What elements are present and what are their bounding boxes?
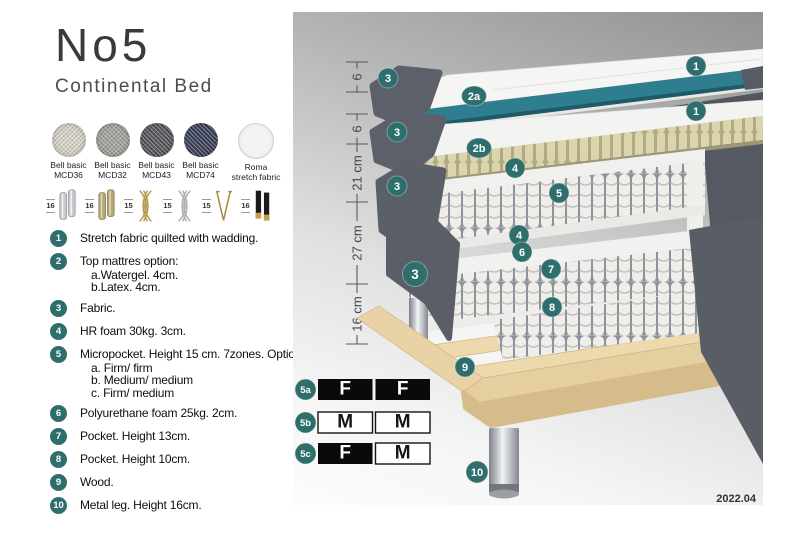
leg-option: 16 — [46, 186, 83, 226]
fabric-code: stretch fabric — [224, 172, 288, 182]
feature-number-badge: 7 — [50, 428, 67, 445]
fabric-swatch: Roma stretch fabric — [224, 123, 288, 182]
feature-number-badge: 1 — [50, 230, 67, 247]
fabric-swatch: Bell basic MCD32 — [92, 123, 133, 182]
feature-text: Micropocket. Height 15 cm. 7zones. Optio… — [80, 348, 304, 362]
fabric-circle-icon — [184, 123, 218, 157]
svg-text:3: 3 — [411, 267, 419, 282]
badge-5: 5 — [549, 183, 569, 203]
firmness-letter: M — [395, 443, 411, 464]
fabric-circle-icon — [238, 123, 274, 159]
badge-10: 10 — [466, 461, 488, 483]
dimension-base-mattress: 27 cm — [346, 202, 368, 284]
badge-2b: 2b — [467, 138, 492, 158]
feature-item: 5Micropocket. Height 15 cm. 7zones. Opti… — [50, 346, 300, 399]
svg-text:5: 5 — [556, 188, 562, 200]
svg-text:6: 6 — [350, 125, 365, 132]
firmness-letter: M — [395, 412, 411, 433]
leg-height: 16 — [85, 198, 94, 215]
badge-4: 4 — [505, 158, 525, 178]
feature-item: 1Stretch fabric quilted with wadding. — [50, 230, 300, 247]
fabric-circle-icon — [52, 123, 86, 157]
svg-text:16 cm: 16 cm — [350, 296, 365, 331]
svg-text:3: 3 — [394, 127, 400, 139]
brand-block: No5 Continental Bed — [55, 22, 213, 98]
leg-height: 15 — [124, 198, 133, 215]
leg-cylinder-brass-icon — [95, 186, 118, 226]
feature-subtext: c. Firm/ medium — [91, 387, 304, 400]
svg-text:8: 8 — [549, 302, 555, 314]
feature-item: 6Polyurethane foam 25kg. 2cm. — [50, 405, 300, 422]
leg-twist-gold-icon — [134, 186, 157, 226]
fabric-swatch: Bell basic MCD74 — [180, 123, 221, 182]
svg-text:10: 10 — [471, 467, 483, 479]
feature-text: Metal leg. Height 16cm. — [80, 499, 201, 513]
firmness-letter: M — [337, 412, 353, 433]
badge-8: 8 — [542, 297, 562, 317]
badge-3: 3 — [403, 262, 428, 287]
feature-text: Stretch fabric quilted with wadding. — [80, 232, 258, 246]
leg-option: 15 — [202, 186, 239, 226]
fabric-swatch: Bell basic MCD36 — [48, 123, 89, 182]
feature-item: 7Pocket. Height 13cm. — [50, 428, 300, 445]
fabric-circle-icon — [96, 123, 130, 157]
svg-text:6: 6 — [519, 247, 525, 259]
firmness-row-5b: 5b M M — [295, 412, 430, 434]
firmness-letter: F — [339, 443, 351, 464]
infographic-page: No5 Continental Bed Bell basic MCD36 Bel… — [0, 0, 800, 533]
bed-cutaway-diagram: 6 6 21 cm 27 cm 16 cm — [293, 12, 763, 505]
dimension-latex-layer: 6 — [346, 114, 368, 144]
svg-text:5b: 5b — [300, 418, 311, 429]
feature-number-badge: 8 — [50, 451, 67, 468]
badge-9: 9 — [455, 357, 475, 377]
fabric-circle-icon — [140, 123, 174, 157]
fabric-code: MCD43 — [136, 170, 177, 180]
leg-option: 15 — [163, 186, 200, 226]
svg-text:5a: 5a — [300, 385, 311, 396]
svg-text:1: 1 — [693, 106, 699, 118]
svg-text:5c: 5c — [300, 449, 311, 460]
leg-cylinder-chrome-icon — [56, 186, 79, 226]
badge-3: 3 — [378, 68, 398, 88]
fabric-label: Bell basic — [180, 160, 221, 170]
feature-item: 9Wood. — [50, 474, 300, 491]
svg-text:3: 3 — [394, 181, 400, 193]
version-stamp: 2022.04 — [716, 493, 757, 505]
fabric-code: MCD32 — [92, 170, 133, 180]
feature-number-badge: 2 — [50, 253, 67, 270]
feature-item: 3Fabric. — [50, 300, 300, 317]
feature-text: Pocket. Height 10cm. — [80, 453, 190, 467]
feature-item: 4HR foam 30kg. 3cm. — [50, 323, 300, 340]
page-title: No5 — [55, 22, 213, 68]
feature-number-badge: 5 — [50, 346, 67, 363]
fabric-code: MCD36 — [48, 170, 89, 180]
dimension-top-mattress: 6 — [346, 62, 368, 92]
svg-text:9: 9 — [462, 362, 468, 374]
leg-height: 15 — [202, 198, 211, 215]
leg-height: 16 — [46, 198, 55, 215]
leg-height: 15 — [163, 198, 172, 215]
badge-7: 7 — [541, 259, 561, 279]
feature-item: 10Metal leg. Height 16cm. — [50, 497, 300, 514]
firmness-row-5a: 5a F F — [295, 379, 430, 401]
badge-3: 3 — [387, 176, 407, 196]
fabric-swatch: Bell basic MCD43 — [136, 123, 177, 182]
fabric-label: Bell basic — [136, 160, 177, 170]
svg-text:7: 7 — [548, 264, 554, 276]
firmness-letter: F — [339, 379, 351, 400]
fabric-label: Roma — [224, 162, 288, 172]
fabric-label: Bell basic — [48, 160, 89, 170]
svg-text:21 cm: 21 cm — [350, 155, 365, 190]
feature-number-badge: 3 — [50, 300, 67, 317]
leg-option: 16 — [241, 186, 278, 226]
leg-height: 16 — [241, 198, 250, 215]
feature-subtext: b.Latex. 4cm. — [91, 281, 178, 294]
fabric-right-side — [689, 216, 763, 464]
page-subtitle: Continental Bed — [55, 76, 213, 98]
feature-number-badge: 9 — [50, 474, 67, 491]
leg-hairpin-icon — [212, 186, 235, 226]
svg-text:1: 1 — [693, 61, 699, 73]
svg-text:2a: 2a — [468, 91, 481, 103]
badge-6: 6 — [512, 242, 532, 262]
feature-number-badge: 4 — [50, 323, 67, 340]
feature-text: Pocket. Height 13cm. — [80, 430, 190, 444]
leg-block-black-gold-icon — [251, 186, 274, 226]
dimension-spring-unit: 21 cm — [346, 144, 368, 202]
feature-number-badge: 10 — [50, 497, 67, 514]
svg-text:2b: 2b — [473, 143, 486, 155]
feature-item: 8Pocket. Height 10cm. — [50, 451, 300, 468]
diagram-panel: 6 6 21 cm 27 cm 16 cm — [293, 12, 763, 505]
leg-options-row: 16 16 15 15 — [46, 186, 278, 226]
fabric-swatch-row: Bell basic MCD36 Bell basic MCD32 Bell b… — [48, 123, 288, 182]
firmness-row-5c: 5c F M — [295, 443, 430, 465]
feature-text: Polyurethane foam 25kg. 2cm. — [80, 407, 237, 421]
feature-number-badge: 6 — [50, 405, 67, 422]
svg-text:4: 4 — [512, 163, 519, 175]
fabric-label: Bell basic — [92, 160, 133, 170]
leg-option: 16 — [85, 186, 122, 226]
badge-3: 3 — [387, 122, 407, 142]
badge-1: 1 — [686, 101, 706, 121]
fabric-code: MCD74 — [180, 170, 221, 180]
feature-text: Fabric. — [80, 302, 115, 316]
badge-2a: 2a — [462, 86, 487, 106]
svg-text:4: 4 — [516, 230, 523, 242]
feature-text: HR foam 30kg. 3cm. — [80, 325, 186, 339]
svg-text:3: 3 — [385, 73, 391, 85]
leg-option: 15 — [124, 186, 161, 226]
feature-text: Wood. — [80, 476, 113, 490]
firmness-table: 5a F F 5b M M 5c F — [295, 379, 430, 465]
feature-item: 2Top mattres option:a.Watergel. 4cm.b.La… — [50, 253, 300, 294]
svg-text:6: 6 — [350, 73, 365, 80]
leg-twist-chrome-icon — [173, 186, 196, 226]
badge-1: 1 — [686, 56, 706, 76]
feature-subtext: b. Medium/ medium — [91, 374, 304, 387]
firmness-letter: F — [397, 379, 409, 400]
feature-list: 1Stretch fabric quilted with wadding. 2T… — [50, 230, 300, 520]
svg-text:27 cm: 27 cm — [350, 225, 365, 260]
feature-text: Top mattres option: — [80, 255, 178, 269]
